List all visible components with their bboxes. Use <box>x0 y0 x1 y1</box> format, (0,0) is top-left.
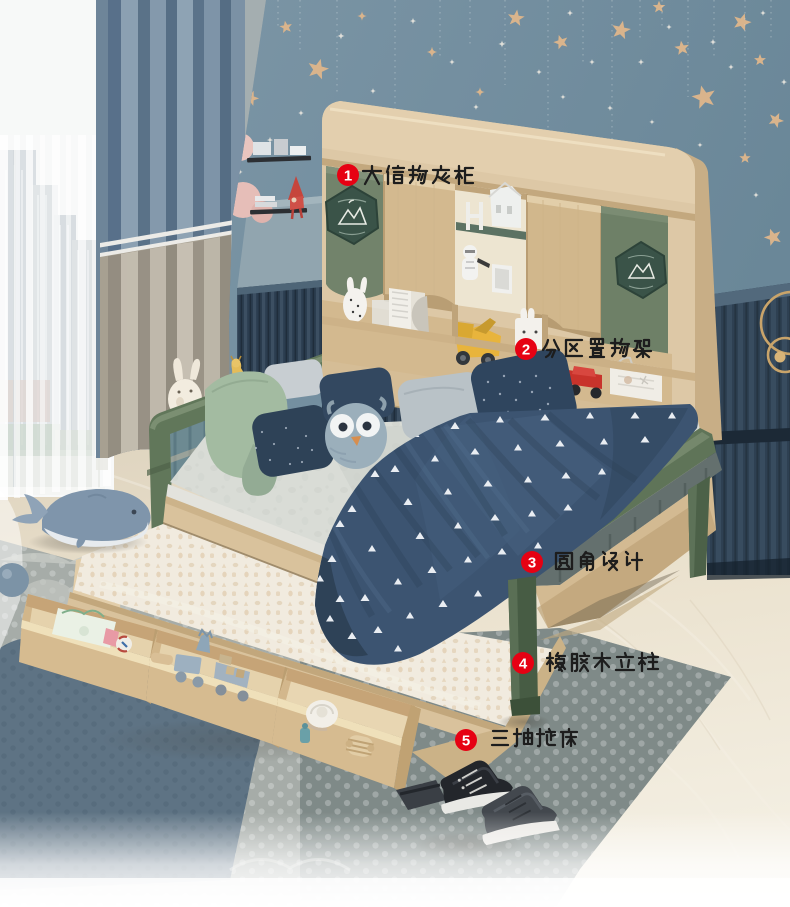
svg-text:3: 3 <box>528 555 536 572</box>
svg-text:1: 1 <box>344 168 352 185</box>
svg-text:5: 5 <box>462 733 470 750</box>
svg-text:2: 2 <box>522 342 530 359</box>
svg-text:4: 4 <box>519 656 528 673</box>
